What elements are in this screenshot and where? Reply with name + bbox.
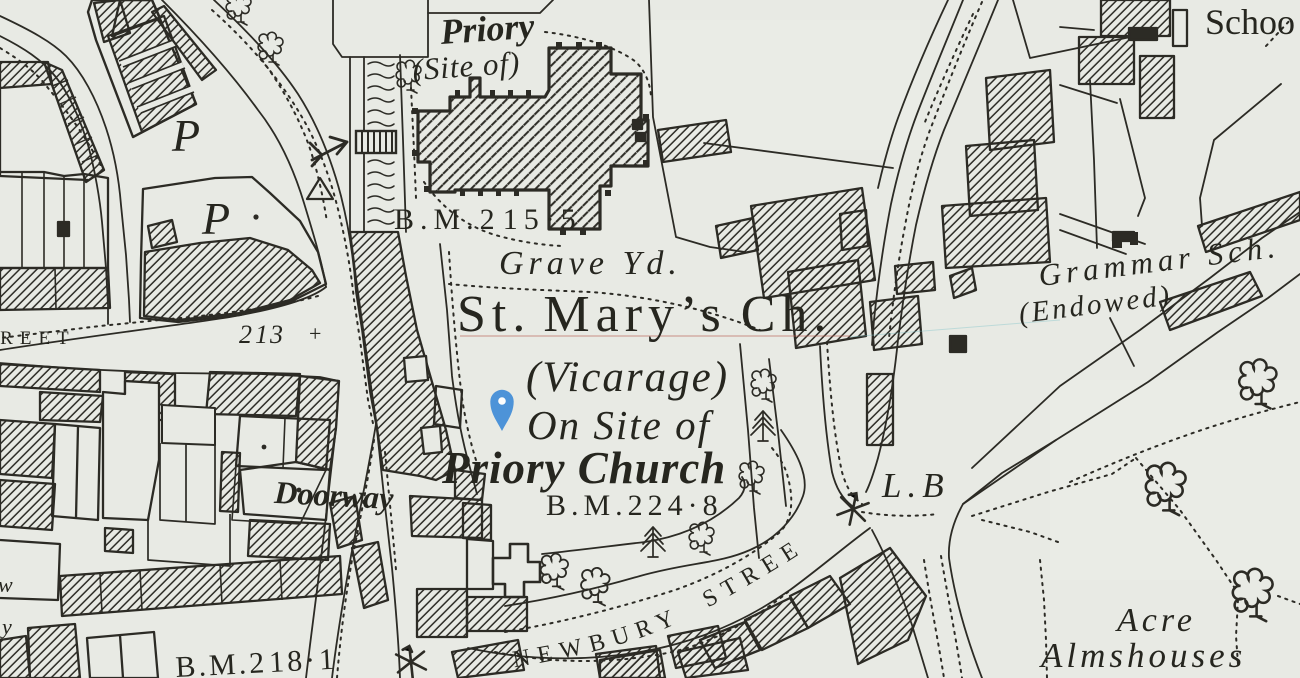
svg-text:Almshouses: Almshouses <box>1039 636 1246 675</box>
svg-text:y: y <box>0 614 12 639</box>
svg-text:St.Mary’sCh.: St.Mary’sCh. <box>457 286 832 343</box>
svg-text:B.M.215·5: B.M.215·5 <box>394 203 582 236</box>
svg-text:(Vicarage): (Vicarage) <box>526 354 729 401</box>
svg-text:B.M.224·8: B.M.224·8 <box>546 489 723 522</box>
svg-text:P: P <box>201 193 230 244</box>
svg-text:On Site of: On Site of <box>527 402 715 448</box>
svg-text:Acre: Acre <box>1115 602 1196 639</box>
svg-text:Grave Yd.: Grave Yd. <box>499 245 682 282</box>
svg-text:STREET: STREET <box>0 328 76 349</box>
svg-text:213: 213 <box>239 320 285 349</box>
svg-text:Doorway: Doorway <box>273 474 396 516</box>
svg-text:w: w <box>0 572 13 597</box>
svg-text:Schoo: Schoo <box>1205 2 1295 42</box>
svg-text:P: P <box>171 110 200 161</box>
svg-text:Priory Church: Priory Church <box>441 443 726 493</box>
svg-text:L.B: L.B <box>881 466 950 505</box>
svg-text:Priory: Priory <box>438 6 537 53</box>
svg-text:+: + <box>309 321 321 346</box>
